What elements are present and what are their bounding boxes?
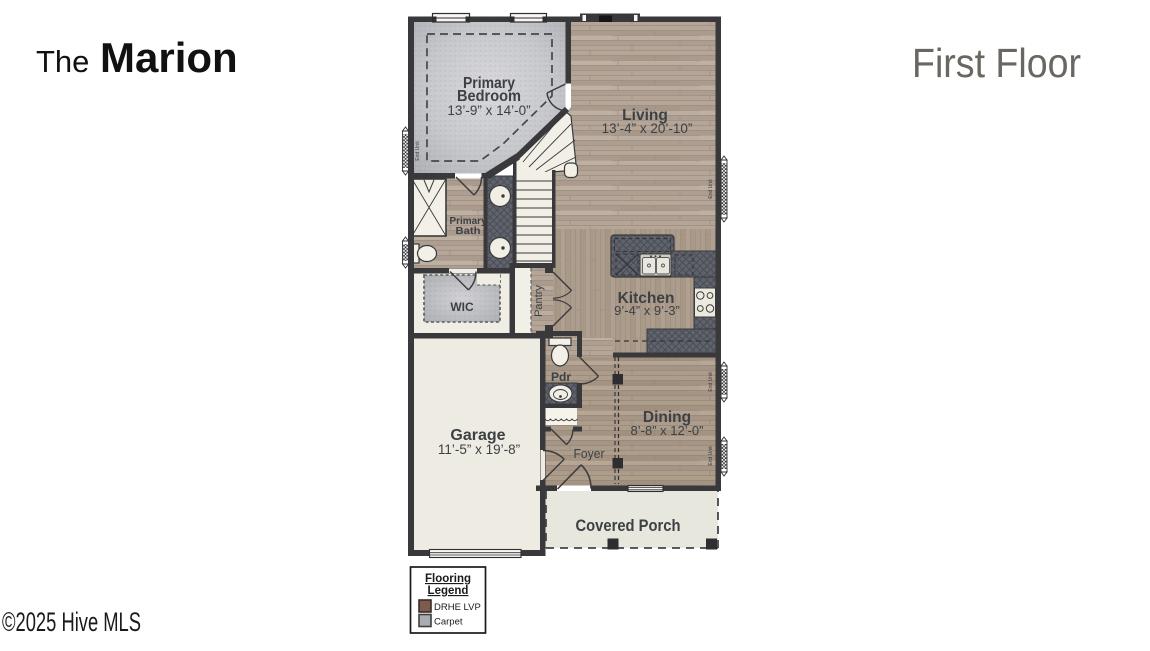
svg-text:WIC: WIC bbox=[450, 300, 474, 314]
svg-text:Foyer: Foyer bbox=[574, 446, 606, 461]
svg-text:Bath: Bath bbox=[456, 225, 481, 237]
svg-text:End Unit: End Unit bbox=[708, 446, 714, 466]
svg-text:Pantry: Pantry bbox=[533, 285, 545, 317]
svg-text:DRHE LVP: DRHE LVP bbox=[434, 602, 481, 613]
svg-text:11’-5” x 19’-8”: 11’-5” x 19’-8” bbox=[438, 442, 520, 457]
svg-text:End Unit: End Unit bbox=[708, 372, 714, 392]
svg-text:9’-4” x 9’-3”: 9’-4” x 9’-3” bbox=[614, 303, 680, 318]
svg-text:©2025 Hive MLS: ©2025 Hive MLS bbox=[2, 607, 141, 637]
svg-text:Carpet: Carpet bbox=[434, 617, 463, 628]
svg-text:13’-9” x 14’-0”: 13’-9” x 14’-0” bbox=[447, 103, 530, 118]
svg-text:End Unit: End Unit bbox=[415, 141, 421, 161]
svg-text:Pdr: Pdr bbox=[551, 370, 571, 384]
svg-text:Flooring: Flooring bbox=[425, 573, 471, 585]
svg-text:Legend: Legend bbox=[428, 585, 469, 597]
svg-text:End Unit: End Unit bbox=[708, 179, 714, 199]
svg-text:8’-8” x 12’-0”: 8’-8” x 12’-0” bbox=[631, 423, 704, 438]
svg-text:First Floor: First Floor bbox=[912, 40, 1081, 86]
svg-text:13’-4” x 20’-10”: 13’-4” x 20’-10” bbox=[602, 121, 693, 136]
svg-text:Covered Porch: Covered Porch bbox=[576, 517, 681, 535]
